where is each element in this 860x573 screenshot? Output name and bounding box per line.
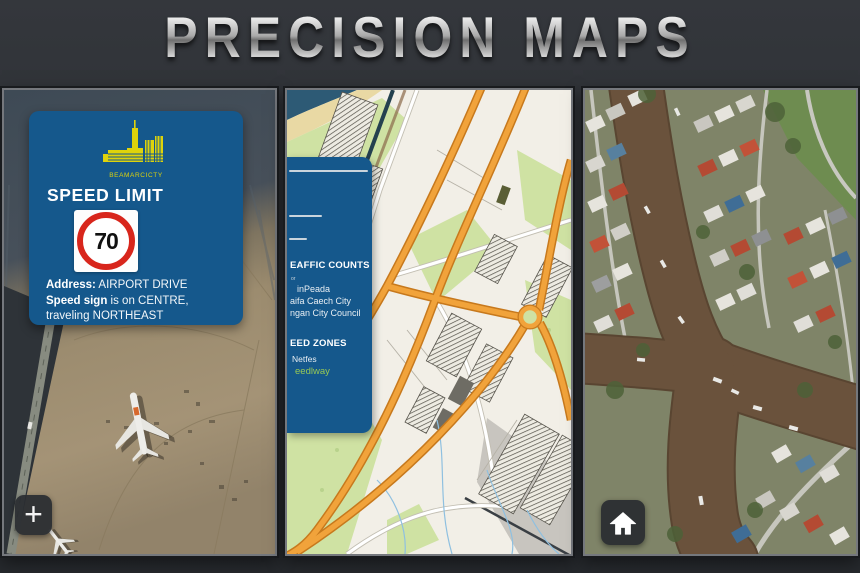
address-label: Address: [46,279,96,291]
speed-limit-sign: 70 [74,210,138,272]
page-title: PRECISION MAPS [164,4,695,71]
sidebar-subtext: or [291,276,295,282]
header: PRECISION MAPS [0,4,860,62]
card-heading: SPEED LIMIT [47,185,163,206]
map-legend-sidebar: EAFFIC COUNTS or inPeada aifa Caech City… [287,157,372,433]
city-logo: BEAMARCICTY [29,118,243,179]
suburb-map-panel[interactable] [583,88,858,556]
precision-maps-app: PRECISION MAPS [0,0,860,573]
city-skyline-icon [97,118,175,168]
airport-map-panel[interactable]: BEAMARCICTY SPEED LIMIT 70 Address: AIRP… [2,88,277,556]
sidebar-item: ngan City Council [290,308,361,318]
street-map-panel[interactable]: EAFFIC COUNTS or inPeada aifa Caech City… [285,88,573,556]
sidebar-item: inPeada [297,284,330,294]
sidebar-divider [289,215,322,217]
suburb-aerial-image [585,90,856,554]
sidebar-item: aifa Caech City [290,296,351,306]
sidebar-item: Netfes [292,354,317,364]
sidebar-divider [289,170,368,172]
speed-sign-ring: 70 [77,212,135,270]
zoom-in-button[interactable]: + [15,495,52,535]
speed-value: 70 [94,228,118,255]
plus-icon: + [24,498,43,530]
traffic-counts-heading: EAFFIC COUNTS [290,260,370,271]
sidebar-divider [289,238,307,240]
detail-label: Speed sign [46,295,107,307]
speedway-link[interactable]: eedlway [295,366,330,377]
city-logo-caption: BEAMARCICTY [29,172,243,179]
card-detail-text: Address: AIRPORT DRIVE Speed sign is on … [46,278,231,325]
home-icon [608,508,638,538]
speed-zones-heading: EED ZONES [290,338,347,349]
home-button[interactable] [601,500,645,545]
address-value: AIRPORT DRIVE [96,279,188,291]
speed-limit-card: BEAMARCICTY SPEED LIMIT 70 Address: AIRP… [29,111,243,325]
